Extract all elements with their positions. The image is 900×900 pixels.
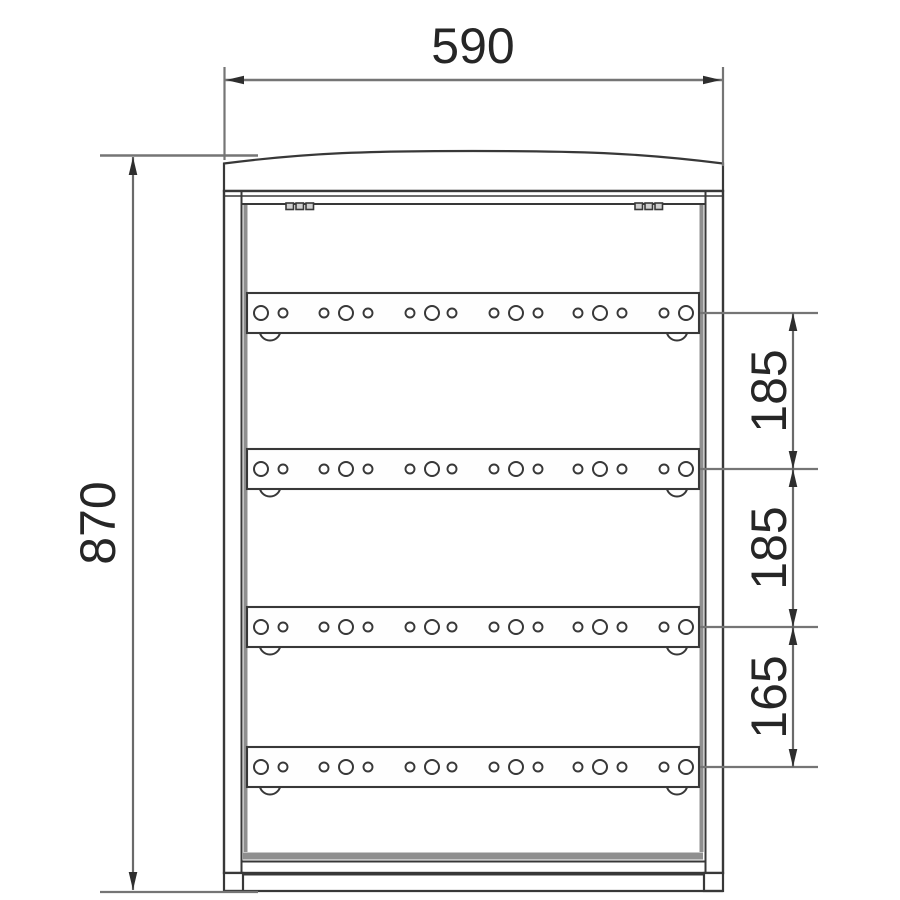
- dimension-label-spacing: 165: [741, 655, 797, 738]
- mounting-hole-large: [339, 620, 353, 634]
- base-foot-right: [704, 873, 723, 891]
- dimension-label-width: 590: [431, 18, 514, 74]
- vent-slot: [306, 203, 314, 210]
- base-foot-left: [224, 873, 243, 891]
- mounting-hole-large: [679, 760, 693, 774]
- mounting-hole-large: [509, 462, 523, 476]
- arrowhead-down: [789, 609, 798, 627]
- arrowhead-right: [703, 76, 721, 85]
- dimension-label-height: 870: [70, 481, 126, 564]
- mounting-hole-small: [448, 465, 457, 474]
- din-rail: [247, 293, 699, 333]
- mounting-hole-small: [279, 309, 288, 318]
- arrowhead-down: [789, 749, 798, 767]
- dimension-overall-width: 590: [225, 18, 724, 166]
- mounting-hole-small: [364, 465, 373, 474]
- mounting-hole-large: [425, 306, 439, 320]
- vent-slot: [645, 203, 653, 210]
- mounting-hole-large: [425, 620, 439, 634]
- enclosure-front-view-drawing: 590 870 185185165: [0, 0, 900, 900]
- mounting-hole-small: [406, 465, 415, 474]
- mounting-hole-small: [660, 465, 669, 474]
- vent-slot: [655, 203, 663, 210]
- mounting-hole-large: [593, 620, 607, 634]
- dimension-label-spacing: 185: [741, 506, 797, 589]
- mounting-hole-large: [509, 760, 523, 774]
- mounting-hole-large: [679, 620, 693, 634]
- mounting-hole-small: [574, 763, 583, 772]
- mounting-hole-small: [320, 763, 329, 772]
- mounting-hole-large: [339, 760, 353, 774]
- mounting-hole-large: [593, 462, 607, 476]
- mounting-hole-small: [490, 309, 499, 318]
- vent-slot: [286, 203, 294, 210]
- mounting-hole-large: [679, 306, 693, 320]
- mounting-hole-large: [254, 760, 268, 774]
- mounting-hole-small: [534, 465, 543, 474]
- mounting-hole-small: [320, 465, 329, 474]
- mounting-hole-small: [534, 623, 543, 632]
- mounting-hole-small: [574, 623, 583, 632]
- mounting-hole-small: [320, 623, 329, 632]
- mounting-hole-large: [339, 462, 353, 476]
- mounting-hole-large: [425, 760, 439, 774]
- mounting-hole-small: [618, 465, 627, 474]
- mounting-hole-small: [448, 623, 457, 632]
- mounting-hole-small: [364, 309, 373, 318]
- enclosure-cabinet: [224, 151, 723, 891]
- mounting-hole-small: [406, 309, 415, 318]
- mounting-hole-small: [490, 623, 499, 632]
- mounting-hole-small: [490, 465, 499, 474]
- mounting-hole-small: [660, 623, 669, 632]
- mounting-hole-small: [618, 309, 627, 318]
- mounting-hole-large: [509, 306, 523, 320]
- mounting-hole-small: [406, 763, 415, 772]
- mounting-hole-large: [254, 462, 268, 476]
- mounting-hole-small: [574, 465, 583, 474]
- mounting-hole-large: [254, 306, 268, 320]
- mounting-hole-small: [660, 763, 669, 772]
- mounting-hole-small: [574, 309, 583, 318]
- mounting-hole-small: [448, 763, 457, 772]
- arrowhead-left: [226, 76, 244, 85]
- mounting-hole-small: [364, 763, 373, 772]
- mounting-hole-small: [279, 465, 288, 474]
- mounting-hole-small: [320, 309, 329, 318]
- mounting-hole-small: [618, 623, 627, 632]
- arrowhead-down: [129, 872, 138, 890]
- mounting-hole-small: [406, 623, 415, 632]
- mounting-hole-small: [364, 623, 373, 632]
- mounting-hole-small: [490, 763, 499, 772]
- arrowhead-up: [789, 469, 798, 487]
- din-rail: [247, 607, 699, 647]
- mounting-hole-large: [593, 760, 607, 774]
- mounting-hole-small: [279, 763, 288, 772]
- din-rail: [247, 449, 699, 489]
- mounting-hole-large: [679, 462, 693, 476]
- arrowhead-up: [129, 157, 138, 175]
- mounting-hole-large: [593, 306, 607, 320]
- mounting-hole-large: [509, 620, 523, 634]
- arrowhead-up: [789, 627, 798, 645]
- mounting-hole-small: [534, 309, 543, 318]
- cabinet-lid: [224, 151, 723, 191]
- mounting-hole-large: [254, 620, 268, 634]
- arrowhead-up: [789, 313, 798, 331]
- vent-slot: [296, 203, 304, 210]
- technical-drawing-canvas: 590 870 185185165: [0, 0, 900, 900]
- mounting-hole-small: [660, 309, 669, 318]
- mounting-hole-small: [618, 763, 627, 772]
- dimension-label-spacing: 185: [741, 349, 797, 432]
- mounting-hole-small: [534, 763, 543, 772]
- din-rail: [247, 747, 699, 787]
- mounting-hole-large: [425, 462, 439, 476]
- mounting-hole-small: [448, 309, 457, 318]
- vent-slot: [635, 203, 643, 210]
- mounting-hole-small: [279, 623, 288, 632]
- arrowhead-down: [789, 451, 798, 469]
- mounting-hole-large: [339, 306, 353, 320]
